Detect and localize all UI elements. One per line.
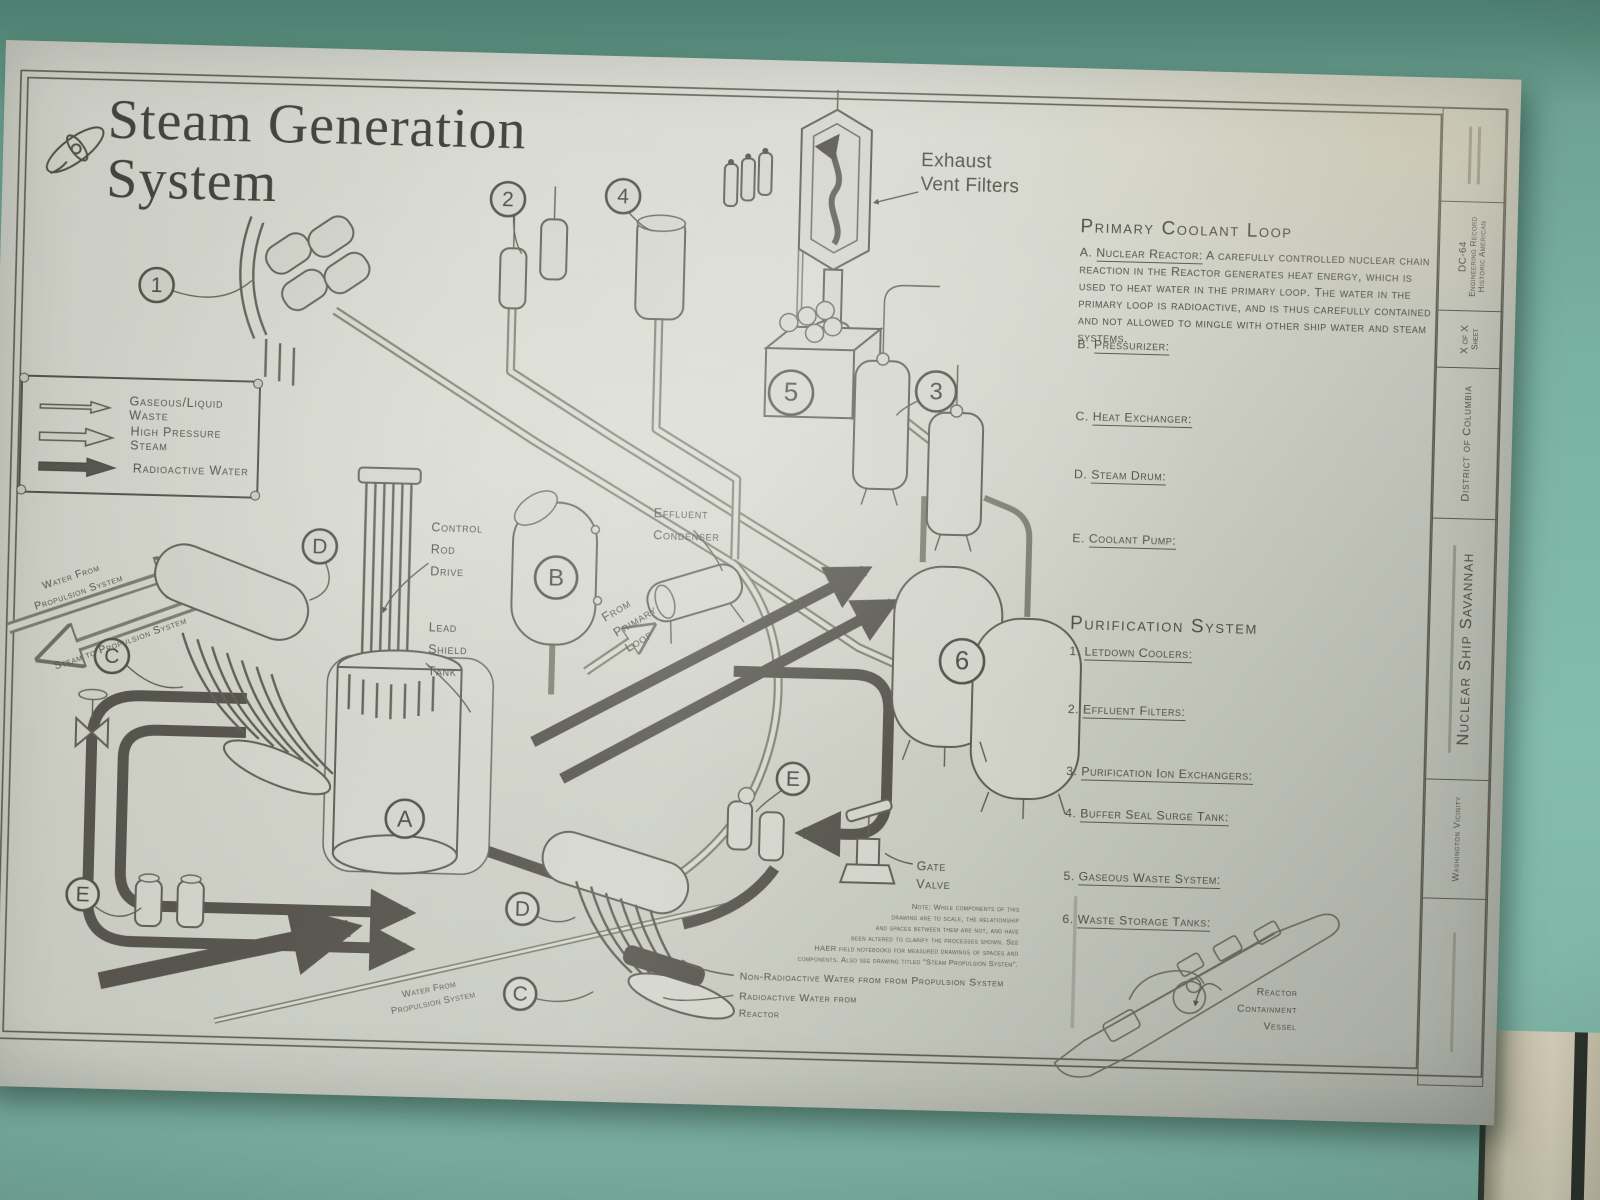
note-heat-exchanger: C. Heat Exchanger: [1075, 408, 1431, 434]
legend-label-steam: High Pressure Steam [130, 424, 258, 455]
note-d-term: Steam Drum: [1091, 468, 1166, 485]
marker-c-bottom-label: C [512, 983, 528, 1006]
steam-drum-left [145, 535, 318, 649]
note-e-key: E. [1072, 531, 1085, 545]
note-b-term: Pressurizer: [1094, 338, 1170, 355]
marker-4-label: 4 [617, 185, 630, 208]
page-title: Steam Generation System [106, 91, 528, 220]
control-rod-drive-label-line3: Drive [430, 564, 464, 579]
note-a-desc: A carefully controlled nuclear chain rea… [1077, 248, 1431, 345]
lead-shield-tank-label-line2: Shield [428, 642, 467, 657]
sheet-value: X of X [1459, 325, 1471, 354]
note-3-key: 3. [1066, 764, 1078, 778]
letdown-coolers [237, 209, 376, 388]
panel-gap-shadow [1571, 1032, 1588, 1200]
note-4-key: 4. [1065, 806, 1077, 820]
marker-d-top-label: D [312, 535, 328, 558]
marker-e-left: E [66, 878, 99, 911]
containment-line3: Vessel [1263, 1020, 1296, 1033]
coolant-pump-right [727, 787, 785, 860]
marker-d-top: D [302, 529, 337, 564]
adjacent-panel [1478, 1030, 1600, 1200]
gate-valve [840, 797, 896, 883]
marker-1-label: 1 [150, 274, 162, 297]
radioactive-water-label-line1: Radioactive Water from [739, 991, 857, 1006]
marker-6: 6 [939, 639, 984, 684]
marker-5: 5 [768, 370, 813, 415]
note-waste-storage: 6. Waste Storage Tanks: [1062, 911, 1418, 937]
effluent-condenser-label-line1: Effluent [654, 506, 709, 521]
district-label: District of Columbia [1459, 385, 1474, 502]
waste-storage-tanks [889, 565, 1083, 820]
marker-e-right-label: E [786, 768, 801, 791]
lead-shield-tank-label-line3: Tank [427, 664, 456, 679]
heat-exchanger-left [178, 633, 340, 805]
title-block-ship: Nuclear Ship Savannah [1426, 518, 1497, 781]
note-surge-tank: 4. Buffer Seal Surge Tank: [1065, 805, 1421, 831]
primary-loop-heading: Primary Coolant Loop [1080, 216, 1293, 244]
marker-b-label: B [548, 564, 565, 591]
note-a-term: Nuclear Reactor: [1096, 246, 1203, 264]
haer-line2: Engineering Record [1467, 216, 1478, 296]
note-c-term: Heat Exchanger: [1093, 410, 1193, 428]
note-5-term: Gaseous Waste System: [1078, 869, 1221, 888]
marker-d-bottom-label: D [515, 898, 531, 921]
sheet-label: Sheet [1470, 329, 1480, 351]
poster: Steam Generation System Gaseous/Liquid W… [0, 40, 1521, 1125]
purification-heading: Purification System [1070, 613, 1258, 640]
note-steam-drum: D. Steam Drum: [1074, 466, 1430, 492]
marker-e-right: E [777, 762, 810, 795]
note-6-term: Waste Storage Tanks: [1077, 912, 1211, 931]
legend-row-radioactive: Radioactive Water [36, 451, 257, 487]
note-3-term: Purification Ion Exchangers: [1081, 764, 1253, 784]
title-block-micro-top [1441, 109, 1507, 203]
note-letdown-coolers: 1. Letdown Coolers: [1069, 643, 1425, 669]
radioactive-water-label-line2: Reactor [739, 1008, 780, 1021]
vicinity-label: Washington Vicinity [1450, 796, 1462, 882]
non-radioactive-water-label: Non-Radioactive Water from from Propulsi… [740, 971, 1004, 990]
note-1-key: 1. [1069, 644, 1081, 658]
pushpin-icon [19, 372, 29, 382]
scale-note: Note: While components of this drawing a… [798, 899, 1020, 969]
note-2-key: 2. [1068, 702, 1080, 716]
scale-note-line2: drawing are to scale, the relationship [891, 912, 1019, 924]
note-effluent-filters: 2. Effluent Filters: [1068, 701, 1424, 727]
micro-text-bar [1468, 126, 1473, 185]
note-5-key: 5. [1063, 869, 1075, 883]
title-block-district: District of Columbia [1433, 367, 1501, 520]
gate-valve-label-line1: Gate [917, 859, 947, 874]
dark-filled-arrow-icon [37, 455, 120, 479]
note-ion-exchangers: 3. Purification Ion Exchangers: [1066, 763, 1422, 789]
containment-line1: Reactor [1257, 986, 1298, 999]
note-b-key: B. [1077, 337, 1090, 351]
haer-number: DC-64 [1457, 241, 1469, 272]
buffer-seal-surge-tank [635, 215, 686, 320]
effluent-condenser-label-line2: Condenser [653, 528, 720, 544]
containment-line2: Containment [1237, 1003, 1297, 1017]
marker-1: 1 [139, 268, 174, 303]
lead-shield-tank-label-line1: Lead [429, 620, 458, 635]
ship-name: Nuclear Ship Savannah [1454, 553, 1478, 747]
wide-outline-arrow-icon [37, 425, 116, 449]
title-block-micro-bottom [1418, 897, 1487, 1086]
note-coolant-pump: E. Coolant Pump: [1072, 530, 1428, 556]
control-rod-drive-label-line1: Control [431, 520, 483, 535]
purification-ion-exchangers [851, 284, 987, 551]
title-block-sheet: Sheet X of X [1437, 310, 1502, 369]
atom-logo-icon [36, 103, 114, 197]
marker-6-label: 6 [954, 645, 969, 675]
title-block-haer: Historic American Engineering Record DC-… [1438, 201, 1505, 312]
marker-b: B [535, 556, 578, 599]
thin-outline-arrow-icon [38, 396, 115, 418]
marker-a-label: A [397, 806, 414, 832]
note-4-term: Buffer Seal Surge Tank: [1080, 806, 1229, 825]
note-6-key: 6. [1062, 912, 1074, 926]
gate-valve-label-line2: Valve [916, 877, 951, 892]
marker-c-bottom: C [504, 977, 537, 1010]
control-rod-drive-label-line2: Rod [431, 542, 456, 557]
note-2-term: Effluent Filters: [1083, 702, 1186, 720]
note-a-key: A. [1080, 245, 1093, 259]
reactor-containment-vessel-label: Reactor Containment Vessel [1237, 986, 1298, 1034]
marker-4: 4 [606, 179, 641, 214]
marker-3: 3 [916, 371, 957, 412]
legend-box: Gaseous/Liquid Waste High Pressure Steam… [18, 375, 261, 499]
gas-bottles [724, 147, 773, 207]
note-d-key: D. [1074, 467, 1088, 481]
marker-d-bottom: D [506, 892, 539, 925]
micro-text-bar [1450, 933, 1456, 1052]
exhaust-vent-filters-label-line1: Exhaust [921, 150, 993, 173]
marker-e-left-label: E [75, 883, 90, 906]
micro-text-bar [1477, 126, 1482, 185]
note-gaseous-waste: 5. Gaseous Waste System: [1063, 868, 1419, 894]
exhaust-vent-filters-label-line2: Vent Filters [920, 174, 1019, 198]
legend-label-radioactive: Radioactive Water [133, 461, 249, 478]
photo-scene: Steam Generation System Gaseous/Liquid W… [0, 0, 1600, 1200]
scale-note-line1: Note: While components of this [912, 902, 1020, 914]
title-block-vicinity: Washington Vicinity [1423, 778, 1490, 899]
note-1-term: Letdown Coolers: [1084, 644, 1192, 662]
legend-label-waste: Gaseous/Liquid Waste [129, 394, 259, 425]
notes-column: Primary Coolant Loop A. Nuclear Reactor:… [1062, 208, 1441, 957]
exhaust-vent-filter [797, 89, 873, 336]
note-c-key: C. [1075, 409, 1089, 423]
marker-a: A [385, 799, 424, 838]
marker-3-label: 3 [929, 378, 943, 405]
marker-5-label: 5 [783, 376, 798, 406]
poster-sheet: Steam Generation System Gaseous/Liquid W… [0, 40, 1521, 1125]
note-e-term: Coolant Pump: [1089, 532, 1177, 550]
